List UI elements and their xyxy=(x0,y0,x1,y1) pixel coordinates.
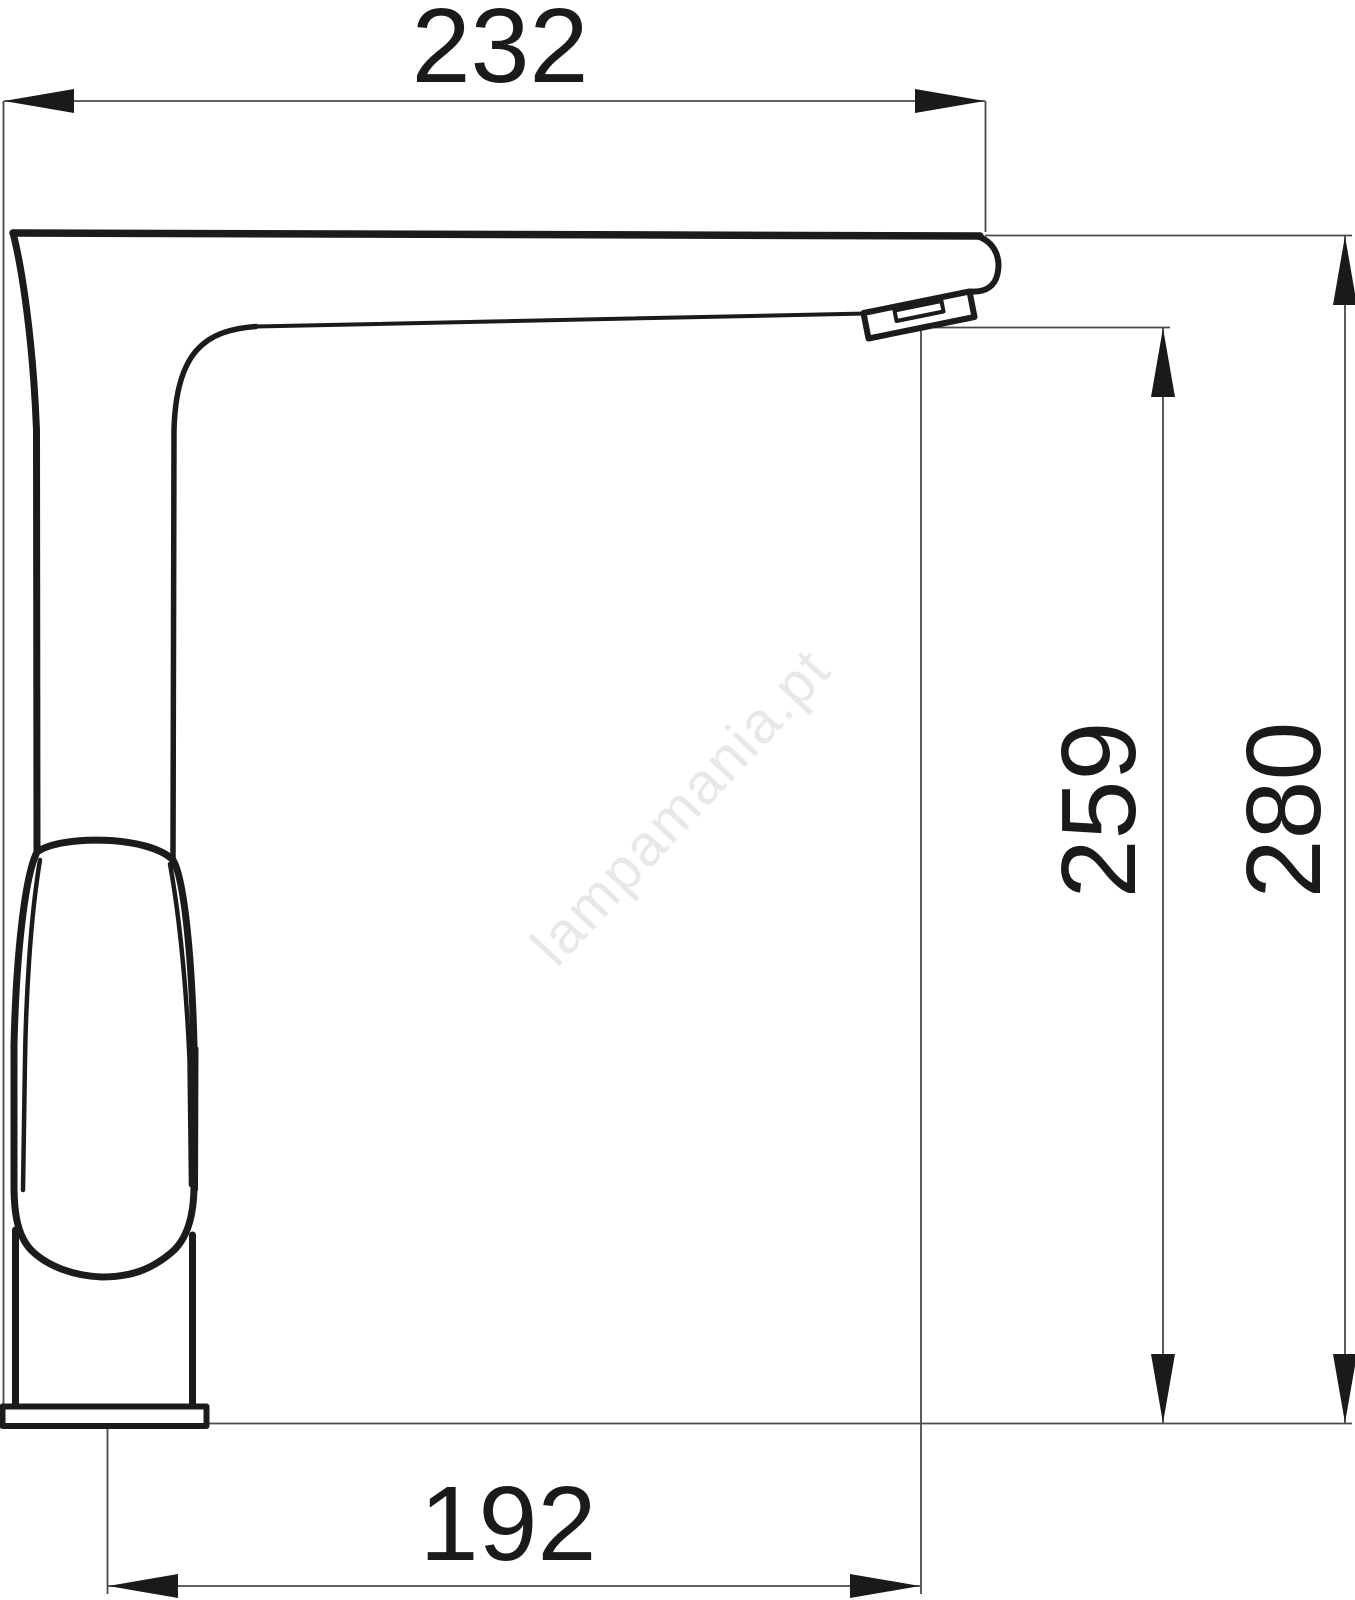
arrowhead-left xyxy=(108,1574,178,1598)
base-plate xyxy=(3,1407,207,1427)
label-overall-width: 232 xyxy=(412,0,589,99)
arrowhead-right xyxy=(850,1574,920,1598)
back-edge xyxy=(13,233,37,852)
label-overall-height: 280 xyxy=(1231,722,1337,899)
arrowhead-up xyxy=(1333,236,1355,305)
label-spout-reach: 192 xyxy=(420,1471,597,1577)
faucet-outline xyxy=(3,233,999,1426)
spout-top-edge xyxy=(13,233,980,236)
arrowhead-left xyxy=(4,89,74,113)
arrowhead-down xyxy=(1333,1354,1355,1423)
neck-front-edge xyxy=(173,327,256,859)
arrowhead-up xyxy=(1151,328,1175,397)
spout-tip-curve xyxy=(971,236,998,292)
faucet-dimension-drawing: lampamania.pt xyxy=(0,0,1355,1600)
spout-underside xyxy=(256,314,866,327)
arrowhead-down xyxy=(1151,1354,1175,1423)
arrowhead-right xyxy=(915,89,985,113)
handle xyxy=(14,840,194,1277)
label-outlet-height: 259 xyxy=(1046,722,1152,899)
